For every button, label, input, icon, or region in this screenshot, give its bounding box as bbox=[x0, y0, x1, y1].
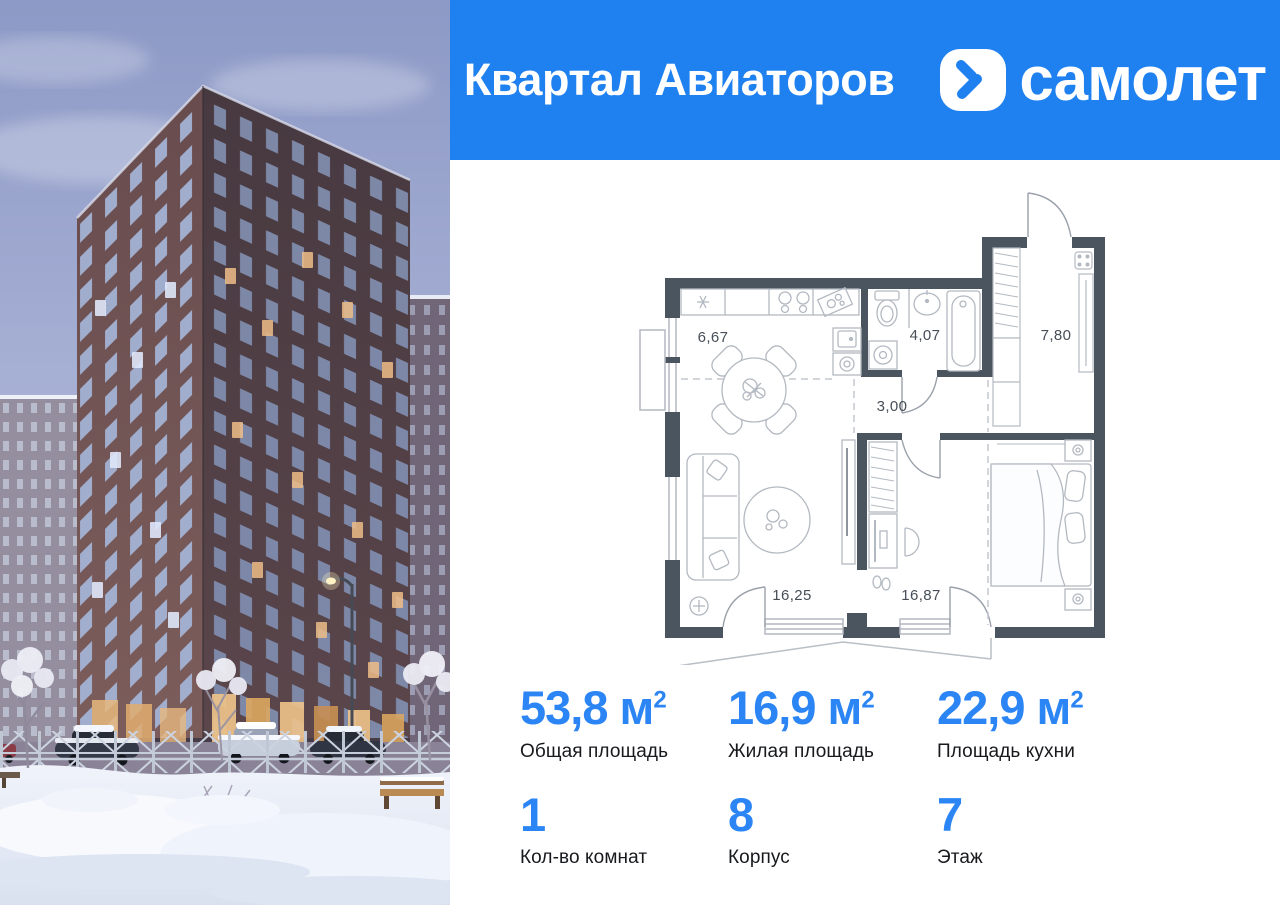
balcony-outline bbox=[670, 638, 991, 665]
room-area-kitchen: 6,67 bbox=[698, 329, 729, 346]
stat-floor: 7 Этаж bbox=[937, 789, 1220, 870]
samolet-logo-text: самолет bbox=[1019, 49, 1266, 111]
toilet-icon bbox=[875, 291, 899, 326]
stat-total-area: 53,8 м2 Общая площадь bbox=[520, 682, 728, 763]
dishwasher bbox=[833, 353, 861, 375]
stat-value: 16,9 м2 bbox=[728, 682, 937, 734]
info-panel: Квартал Авиаторов самолет bbox=[450, 0, 1280, 905]
floor-plan: 6,67 4,07 7,80 3,00 16,25 16,87 bbox=[635, 190, 1105, 665]
kitchen-sink bbox=[833, 328, 861, 351]
bed bbox=[991, 464, 1091, 586]
living-room-fixtures bbox=[687, 440, 855, 615]
stat-value: 1 bbox=[520, 789, 728, 841]
floor-lamp-icon bbox=[690, 597, 708, 615]
building-photo-scene bbox=[0, 0, 450, 905]
nightstand bbox=[1065, 589, 1091, 610]
stat-value: 53,8 м2 bbox=[520, 682, 728, 734]
bedroom-fixtures bbox=[869, 440, 1091, 610]
stat-rooms-count: 1 Кол-во комнат bbox=[520, 789, 728, 870]
stat-label: Этаж bbox=[937, 847, 1220, 869]
bathtub-icon bbox=[947, 291, 980, 371]
samolet-logo: самолет bbox=[940, 49, 1266, 111]
desk bbox=[869, 514, 897, 568]
dining-table bbox=[709, 343, 800, 438]
desk-chair bbox=[905, 528, 919, 556]
tv-console bbox=[842, 440, 855, 564]
stat-label: Жилая площадь bbox=[728, 741, 937, 763]
stat-value: 8 bbox=[728, 789, 937, 841]
project-title: Квартал Авиаторов bbox=[464, 54, 895, 106]
rug bbox=[744, 487, 810, 553]
room-area-corridor: 3,00 bbox=[877, 398, 908, 415]
samolet-logo-icon bbox=[940, 49, 1006, 111]
listing-card: Квартал Авиаторов самолет bbox=[0, 0, 1280, 905]
stat-label: Кол-во комнат bbox=[520, 847, 728, 869]
room-area-hallway: 7,80 bbox=[1041, 327, 1072, 344]
nightstand bbox=[1065, 440, 1091, 461]
stat-value: 7 bbox=[937, 789, 1220, 841]
room-area-bedroom: 16,87 bbox=[901, 587, 941, 604]
snow-foreground bbox=[0, 765, 450, 905]
header: Квартал Авиаторов самолет bbox=[450, 0, 1280, 160]
washing-machine-icon bbox=[869, 341, 897, 369]
stat-building: 8 Корпус bbox=[728, 789, 937, 870]
stat-kitchen-area: 22,9 м2 Площадь кухни bbox=[937, 682, 1220, 763]
doormat-icon bbox=[1075, 252, 1092, 269]
stat-label: Площадь кухни bbox=[937, 741, 1220, 763]
building-photo bbox=[0, 0, 450, 905]
room-area-bathroom: 4,07 bbox=[910, 327, 941, 344]
stat-label: Корпус bbox=[728, 847, 937, 869]
sofa bbox=[687, 454, 739, 580]
floor-plan-drawing: 6,67 4,07 7,80 3,00 16,25 16,87 bbox=[635, 190, 1105, 665]
apartment-stats: 53,8 м2 Общая площадь 16,9 м2 Жилая площ… bbox=[520, 682, 1220, 869]
stat-living-area: 16,9 м2 Жилая площадь bbox=[728, 682, 937, 763]
sink-icon bbox=[914, 290, 940, 315]
stat-value: 22,9 м2 bbox=[937, 682, 1220, 734]
stat-label: Общая площадь bbox=[520, 741, 728, 763]
room-area-living: 16,25 bbox=[772, 587, 812, 604]
